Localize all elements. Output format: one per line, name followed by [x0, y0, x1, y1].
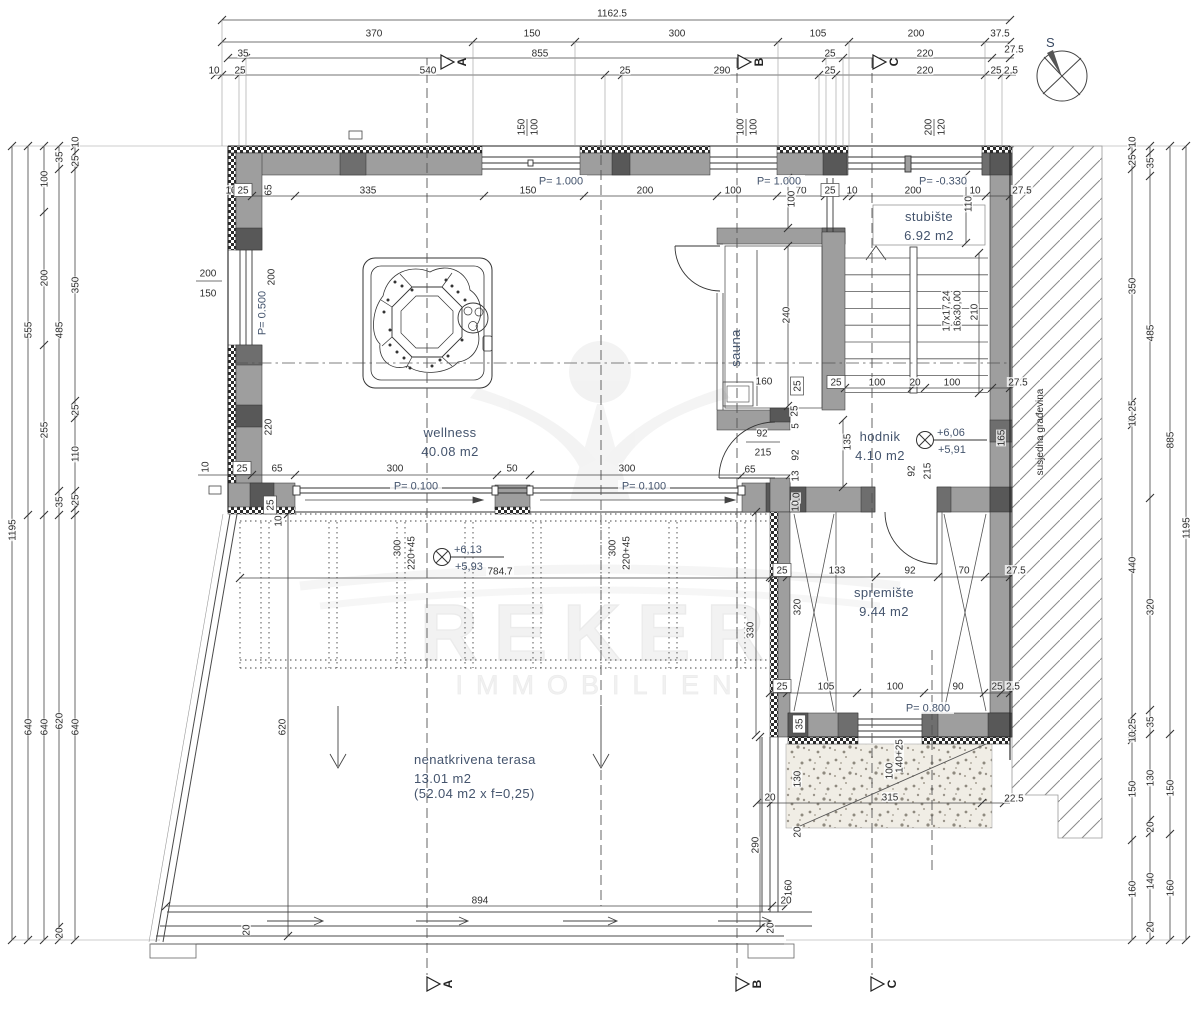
dimension-label: 100 [944, 377, 961, 389]
north-label: S [1046, 35, 1055, 50]
svg-text:25: 25 [776, 682, 788, 693]
north-arrow: S [1037, 35, 1087, 101]
parapet-label: P= 0.100 [618, 480, 670, 493]
svg-text:25: 25 [1128, 400, 1139, 412]
dimension-label: 135 [842, 433, 854, 450]
svg-text:140: 140 [1146, 872, 1157, 889]
svg-text:300: 300 [669, 29, 686, 40]
svg-text:35: 35 [1146, 157, 1157, 169]
dimension-label: 25 [773, 564, 791, 577]
svg-text:35: 35 [55, 496, 66, 508]
svg-text:100: 100 [869, 378, 886, 389]
svg-text:25: 25 [991, 682, 1003, 693]
dimension-label: 10 [1127, 136, 1139, 148]
dimension-label: 315 [882, 792, 899, 804]
dimension-label: 105 [818, 681, 835, 693]
dimension-label: 620 [54, 712, 66, 729]
svg-text:hodnik: hodnik [860, 429, 901, 444]
svg-text:10: 10 [201, 461, 212, 473]
dimension-label: 10 [208, 65, 220, 77]
dimension-label: 220 [263, 418, 275, 435]
dimension-label: 150 [516, 118, 528, 135]
dimension-label: 110 [70, 446, 82, 463]
svg-text:20: 20 [766, 922, 777, 934]
dimension-label: 215 [922, 462, 934, 479]
dimension-label: 320 [792, 598, 804, 615]
dimension-label: 440 [1127, 556, 1139, 573]
svg-text:A: A [455, 57, 469, 66]
svg-text:25: 25 [237, 186, 249, 197]
dimension-label: 100 [887, 681, 904, 693]
dimension-label: 90 [952, 681, 964, 693]
svg-text:300: 300 [619, 464, 636, 475]
parapet-label: P= 0.800 [902, 702, 954, 715]
svg-text:27.5: 27.5 [1012, 186, 1032, 197]
dimension-label: 35 [1145, 157, 1157, 169]
dimension-label: 220 [917, 48, 934, 60]
svg-text:25: 25 [824, 186, 836, 197]
svg-text:200: 200 [637, 186, 654, 197]
dimension-label: 300 [669, 28, 686, 40]
svg-text:25: 25 [266, 499, 277, 511]
insulation-hatch [228, 146, 482, 153]
svg-text:+6,13: +6,13 [454, 544, 482, 556]
dimension-label: 200 [637, 185, 654, 197]
svg-text:spremište: spremište [854, 585, 914, 600]
svg-text:B: B [752, 57, 766, 66]
dimension-label: 25 [1127, 400, 1139, 412]
floor-plan-canvas: REKER IMMOBILIEN susjedna građevina [0, 0, 1200, 1016]
svg-text:855: 855 [532, 49, 549, 60]
window-spremiste-south [858, 719, 922, 731]
dimension-label: 640 [39, 718, 51, 735]
dimension-label: 25 [234, 65, 246, 77]
svg-text:sauna: sauna [728, 329, 743, 367]
dimension-label: 10 [790, 500, 802, 512]
svg-text:92: 92 [904, 566, 916, 577]
dimension-label: 37.5 [989, 28, 1011, 40]
dimension-label: 25 [824, 48, 836, 60]
dimension-label: 133 [829, 565, 846, 577]
dimension-label: 35 [237, 48, 249, 60]
dimension-label: 555 [23, 321, 35, 338]
dimension-label: 25 [70, 494, 82, 506]
room-label: wellness40.08 m2 [421, 425, 478, 459]
dimension-label: 35 [1145, 716, 1157, 728]
svg-text:27.5: 27.5 [1004, 45, 1024, 56]
svg-text:200: 200 [267, 268, 278, 285]
svg-text:25: 25 [236, 464, 248, 475]
svg-text:92: 92 [907, 465, 918, 477]
svg-text:25: 25 [830, 378, 842, 389]
dimension-label: 17x17,24 [941, 289, 953, 334]
dimension-label: 255 [39, 421, 51, 438]
dimension-label: 620 [277, 718, 289, 735]
section-marker: B [736, 977, 764, 991]
svg-text:10: 10 [208, 66, 220, 77]
svg-text:P= 0.100: P= 0.100 [622, 481, 666, 493]
dimension-label: 200 [200, 268, 217, 280]
svg-text:485: 485 [1146, 324, 1157, 341]
svg-text:20: 20 [242, 924, 253, 936]
svg-text:P= 1.000: P= 1.000 [539, 176, 583, 188]
dimension-label: 485 [54, 321, 66, 338]
svg-text:25: 25 [1128, 154, 1139, 166]
svg-text:C: C [885, 979, 899, 988]
svg-text:320: 320 [793, 598, 804, 615]
svg-text:5: 5 [791, 423, 802, 429]
svg-text:2.5: 2.5 [1004, 66, 1018, 77]
svg-text:6.92 m2: 6.92 m2 [904, 228, 954, 243]
dimension-label: 20 [1145, 921, 1157, 933]
dimension-label: 370 [366, 28, 383, 40]
svg-text:P= 1.000: P= 1.000 [757, 176, 801, 188]
dimension-label: 200 [923, 118, 935, 135]
svg-text:1195: 1195 [1182, 517, 1193, 539]
dimension-label: 100 [529, 118, 541, 135]
dimension-label: 165 [996, 429, 1008, 446]
dimension-label: 150 [200, 288, 217, 300]
stair-handrail [910, 247, 917, 393]
svg-text:(52.04 m2 x f=0,25): (52.04 m2 x f=0,25) [414, 786, 535, 801]
dimension-label: 25 [991, 681, 1003, 693]
dimension-label: 25 [70, 155, 82, 167]
svg-text:555: 555 [24, 321, 35, 338]
dimension-label: 35 [54, 151, 66, 163]
parapet-label: P= 1.000 [753, 175, 805, 188]
svg-text:350: 350 [1128, 277, 1139, 294]
dimension-label: 27.5 [1005, 565, 1027, 577]
svg-text:894: 894 [472, 896, 489, 907]
dimension-label: 1162.5 [595, 8, 629, 20]
dimension-label: 350 [1127, 277, 1139, 294]
svg-text:540: 540 [420, 66, 437, 77]
dimension-label: 35 [793, 715, 806, 733]
window-wellness-west [240, 250, 252, 345]
svg-text:10: 10 [791, 500, 802, 512]
dimension-label: 70 [958, 565, 970, 577]
svg-text:35: 35 [795, 718, 806, 730]
neighbor-building-hatch: susjedna građevina [1012, 146, 1102, 838]
dimension-label: 25 [70, 404, 82, 416]
section-marker: C [873, 55, 901, 69]
window-wellness-north [482, 157, 580, 169]
svg-text:220: 220 [917, 49, 934, 60]
dimension-label: 100 [748, 118, 760, 135]
svg-text:10: 10 [969, 186, 981, 197]
section-marker: B [738, 55, 766, 69]
dimension-label: 200 [39, 269, 51, 286]
svg-text:25: 25 [776, 566, 788, 577]
svg-text:200: 200 [908, 29, 925, 40]
dimension-label: 485 [1145, 324, 1157, 341]
svg-text:27.5: 27.5 [1006, 566, 1026, 577]
room-label: hodnik4.10 m2 [855, 429, 905, 463]
dimension-label: 25 [1127, 154, 1139, 166]
dimension-label: 35 [54, 496, 66, 508]
svg-text:215: 215 [923, 462, 934, 479]
svg-text:20: 20 [793, 826, 804, 838]
svg-text:105: 105 [810, 29, 827, 40]
svg-text:200: 200 [40, 269, 51, 286]
sauna-heater [723, 382, 753, 406]
svg-text:165: 165 [997, 429, 1008, 446]
dimension-label: 10 [70, 136, 82, 148]
dimension-label: 240 [781, 306, 793, 323]
dimension-label: 855 [532, 48, 549, 60]
svg-text:160: 160 [1166, 879, 1177, 896]
terrace-slope-arrows [267, 706, 771, 925]
terrace-outline [149, 512, 812, 958]
elevation-marker: +6,06+5,91 [917, 427, 988, 456]
svg-text:240: 240 [782, 306, 793, 323]
dimension-label: 20 [1145, 821, 1157, 833]
dimension-label: 335 [360, 185, 377, 197]
svg-text:100: 100 [787, 190, 798, 207]
svg-text:215: 215 [755, 448, 772, 459]
dimension-label: 290 [750, 836, 762, 853]
svg-text:640: 640 [71, 718, 82, 735]
dimension-label: 110 [963, 196, 975, 213]
svg-text:17x17,24: 17x17,24 [942, 290, 953, 332]
parapet-label: P= 0.100 [390, 480, 442, 493]
watermark-line1: REKER [420, 588, 780, 677]
svg-text:37.5: 37.5 [990, 29, 1010, 40]
dimension-label: 100 [39, 170, 51, 187]
dimension-label: 160 [783, 879, 795, 896]
svg-text:255: 255 [40, 421, 51, 438]
svg-text:133: 133 [829, 566, 846, 577]
dimension-label: 160 [1165, 879, 1177, 896]
dimension-label: 50 [506, 463, 518, 475]
svg-text:35: 35 [237, 49, 249, 60]
svg-text:150: 150 [517, 118, 528, 135]
gravel-area [786, 744, 992, 828]
dimension-label: 20 [54, 927, 66, 939]
svg-text:370: 370 [366, 29, 383, 40]
window-stair-north [848, 156, 982, 172]
dimension-label: 130 [1145, 769, 1157, 786]
svg-text:105: 105 [818, 682, 835, 693]
dimension-label: 160 [1127, 880, 1139, 897]
svg-text:100: 100 [887, 682, 904, 693]
svg-text:150: 150 [1128, 780, 1139, 797]
dimension-label: 10 [200, 461, 212, 473]
svg-text:320: 320 [1146, 598, 1157, 615]
svg-text:150: 150 [200, 289, 217, 300]
dimension-label: 215 [755, 447, 772, 459]
svg-text:220+45: 220+45 [622, 536, 633, 570]
dimension-label: 10 [273, 515, 285, 527]
svg-text:620: 620 [278, 718, 289, 735]
svg-text:130: 130 [793, 770, 804, 787]
svg-text:25: 25 [71, 494, 82, 506]
svg-text:20: 20 [1146, 821, 1157, 833]
dimension-label: 220 [917, 65, 934, 77]
dimension-label: 92 [790, 449, 802, 461]
dimension-label: 27.5 [1011, 185, 1033, 197]
watermark-line2: IMMOBILIEN [455, 670, 744, 700]
svg-text:220+45: 220+45 [407, 536, 418, 570]
dimension-label: 20 [765, 922, 777, 934]
svg-text:100: 100 [736, 118, 747, 135]
dimension-label: 300 [607, 539, 619, 556]
svg-text:110: 110 [964, 196, 975, 212]
svg-text:160: 160 [1128, 880, 1139, 897]
svg-text:300: 300 [387, 464, 404, 475]
svg-text:4.10 m2: 4.10 m2 [855, 448, 905, 463]
svg-text:70: 70 [958, 566, 970, 577]
svg-text:25: 25 [71, 155, 82, 167]
section-marker: A [427, 977, 455, 991]
dimension-label: 25 [234, 184, 252, 197]
dimension-label: 92 [904, 565, 916, 577]
dimension-label: 140+25 [894, 739, 906, 773]
dimension-label: 13 [790, 470, 802, 482]
svg-text:wellness: wellness [422, 425, 476, 440]
svg-text:210: 210 [970, 303, 981, 320]
svg-text:640: 640 [24, 718, 35, 735]
neighbor-building-label: susjedna građevina [1035, 388, 1046, 475]
door-spremiste [885, 512, 937, 564]
svg-text:25: 25 [824, 66, 836, 77]
jacuzzi-control-pod [458, 303, 488, 333]
watermark: REKER IMMOBILIEN [300, 341, 900, 700]
dimension-label: 130 [792, 770, 804, 787]
parapet-label: P= 1.000 [535, 175, 587, 188]
dimension-label: 540 [420, 65, 437, 77]
svg-text:25: 25 [990, 66, 1002, 77]
dimension-label: 100 [786, 190, 798, 207]
dimension-label: 25 [264, 496, 277, 514]
dimension-label: 290 [714, 65, 731, 77]
svg-text:640: 640 [40, 718, 51, 735]
svg-text:20: 20 [909, 378, 921, 389]
dimension-label: 25 [773, 680, 791, 693]
dimension-label: 894 [472, 895, 489, 907]
dimension-label: 10 [1127, 415, 1139, 427]
dimension-label: 100 [869, 377, 886, 389]
svg-text:25: 25 [790, 405, 801, 417]
svg-text:+5,91: +5,91 [938, 444, 966, 456]
dimension-label: 25 [821, 184, 839, 197]
svg-text:35: 35 [1146, 716, 1157, 728]
dimension-label: 1195 [1181, 517, 1193, 539]
svg-text:10: 10 [1128, 136, 1139, 148]
svg-text:220: 220 [917, 66, 934, 77]
dimension-label: 150 [1127, 780, 1139, 797]
svg-text:65: 65 [271, 464, 283, 475]
svg-text:2.5: 2.5 [1006, 682, 1020, 693]
room-label: stubište6.92 m2 [904, 209, 954, 243]
dimension-label: 784.7 [486, 566, 514, 578]
dimension-label: 885 [1165, 431, 1177, 448]
dimension-label: 25 [827, 376, 845, 389]
svg-text:25: 25 [824, 49, 836, 60]
svg-text:100: 100 [40, 170, 51, 187]
dimension-label: 25 [789, 405, 801, 417]
dimension-label: 1195 [7, 519, 19, 541]
dimension-label: 92 [756, 428, 768, 440]
svg-text:485: 485 [55, 321, 66, 338]
dimension-label: 92 [906, 465, 918, 477]
svg-text:25: 25 [71, 404, 82, 416]
svg-text:784.7: 784.7 [487, 567, 512, 578]
dimension-label: 200 [266, 268, 278, 285]
svg-text:+5,93: +5,93 [455, 561, 483, 573]
svg-text:9.44 m2: 9.44 m2 [859, 604, 909, 619]
dimension-label: 25 [791, 377, 804, 395]
dimension-label: 25 [990, 65, 1002, 77]
section-marker: A [441, 55, 469, 69]
svg-text:885: 885 [1166, 431, 1177, 448]
svg-text:92: 92 [756, 429, 768, 440]
svg-text:110: 110 [71, 446, 82, 462]
svg-text:13.01 m2: 13.01 m2 [414, 771, 471, 786]
svg-text:350: 350 [71, 276, 82, 293]
dimension-label: 320 [1145, 598, 1157, 615]
svg-text:150: 150 [520, 186, 537, 197]
dimension-label: 330 [745, 621, 757, 638]
svg-text:290: 290 [751, 836, 762, 853]
svg-text:25: 25 [793, 380, 804, 392]
svg-text:92: 92 [791, 449, 802, 461]
svg-text:16x30,00: 16x30,00 [953, 290, 964, 332]
svg-text:nenatkrivena terasa: nenatkrivena terasa [414, 752, 536, 767]
svg-text:150: 150 [524, 29, 541, 40]
svg-text:10: 10 [274, 515, 285, 527]
svg-text:135: 135 [843, 433, 854, 450]
dimension-label: 2.5 [1003, 65, 1020, 77]
svg-text:20: 20 [1146, 921, 1157, 933]
svg-text:20: 20 [780, 896, 792, 907]
window-entry-north [710, 157, 777, 169]
dimension-label: 25 [1127, 718, 1139, 730]
dimension-label: 20 [792, 826, 804, 838]
dimension-label: 300 [387, 463, 404, 475]
dimension-label: 16x30,00 [952, 289, 964, 334]
svg-text:22.5: 22.5 [1004, 794, 1024, 805]
dimension-label: 300 [392, 539, 404, 556]
dimension-label: 150 [520, 185, 537, 197]
svg-text:P= -0.330: P= -0.330 [919, 176, 967, 188]
dimension-label: 200 [908, 28, 925, 40]
svg-text:220: 220 [264, 418, 275, 435]
dimension-label: 120 [936, 118, 948, 135]
dimension-label: 10 [969, 185, 981, 197]
svg-text:300: 300 [393, 539, 404, 556]
dimension-label: 27.5 [1003, 44, 1025, 56]
dimension-label: 10 [846, 185, 858, 197]
svg-text:100: 100 [749, 118, 760, 135]
dimension-label: 20 [241, 924, 253, 936]
dimension-label: 22.5 [1003, 793, 1025, 805]
floor-plan-page: REKER IMMOBILIEN susjedna građevina [0, 0, 1200, 1016]
dimension-label: 100 [735, 118, 747, 135]
svg-text:P= 0.800: P= 0.800 [906, 703, 950, 715]
svg-text:315: 315 [882, 793, 899, 804]
svg-text:140+25: 140+25 [895, 739, 906, 773]
dimension-label: 65 [271, 463, 283, 475]
svg-text:20: 20 [55, 927, 66, 939]
svg-text:stubište: stubište [905, 209, 953, 224]
svg-text:25: 25 [234, 66, 246, 77]
room-label: nenatkrivena terasa13.01 m2(52.04 m2 x f… [414, 752, 536, 801]
dimension-label: 640 [23, 718, 35, 735]
svg-text:200: 200 [924, 118, 935, 135]
svg-text:B: B [750, 979, 764, 988]
dimension-label: 2.5 [1005, 681, 1022, 693]
